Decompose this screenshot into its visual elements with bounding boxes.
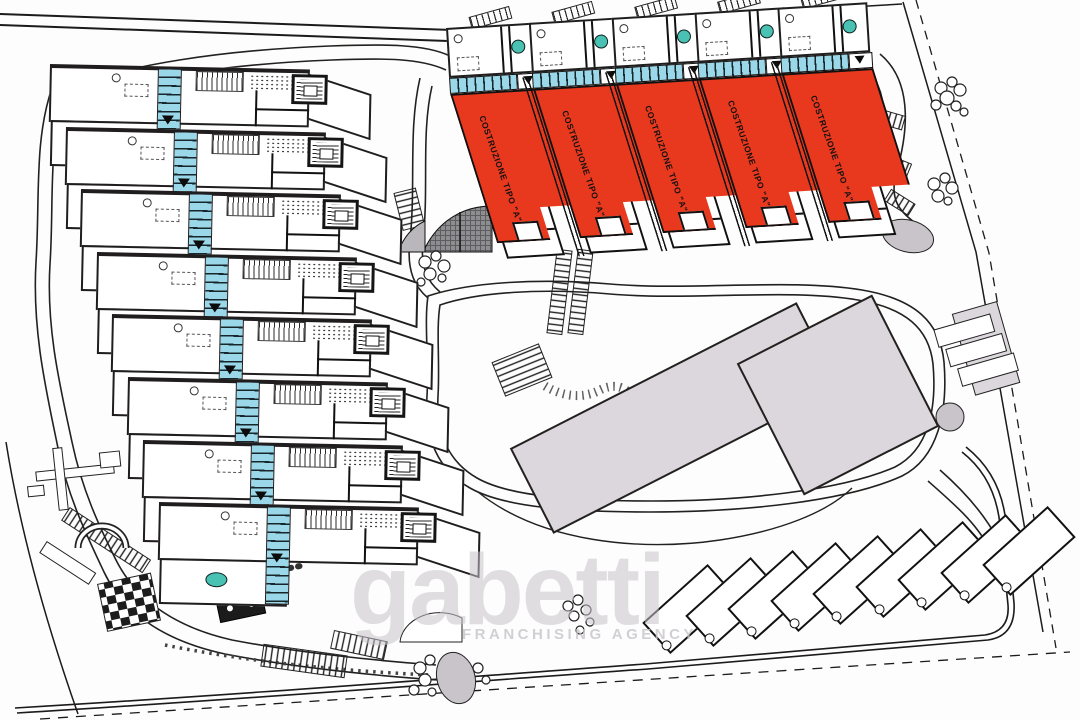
building-head <box>446 23 539 78</box>
dashed-patio <box>233 522 257 535</box>
utility-box <box>400 512 437 543</box>
type-a-buildings-row: COSTRUZIONE TIPO "A" COSTRUZIONE TIPO "A… <box>446 0 932 307</box>
small-circle <box>189 386 198 395</box>
pergola-hatch <box>288 447 336 468</box>
small-circle <box>702 19 712 29</box>
utility-box <box>291 74 328 105</box>
building-head <box>695 7 788 62</box>
dashed-patio <box>124 84 148 97</box>
dashed-patio <box>788 36 811 51</box>
dashed-patio <box>155 209 179 222</box>
dashed-patio <box>140 146 164 159</box>
corridor-wall <box>749 11 754 57</box>
tree-dot <box>511 39 526 54</box>
small-circle <box>536 29 546 39</box>
terraced-unit <box>156 502 498 619</box>
tree-dot <box>759 24 774 39</box>
utility-box <box>307 137 344 168</box>
building-head <box>612 12 705 67</box>
site-plan-canvas: COSTRUZIONE TIPO "A" COSTRUZIONE TIPO "A… <box>0 0 1080 720</box>
dashed-patio <box>217 459 241 472</box>
utility-box <box>384 450 421 481</box>
pergola-hatch <box>226 196 274 217</box>
dashed-patio <box>540 51 563 66</box>
small-circle <box>127 136 136 145</box>
corridor-wall <box>831 6 836 52</box>
utility-box <box>353 324 390 355</box>
type-a-building: COSTRUZIONE TIPO "A" <box>777 2 885 277</box>
corridor-wall <box>666 16 671 62</box>
small-circle <box>220 511 229 520</box>
pergola-hatch <box>304 509 352 530</box>
pergola-hatch <box>242 259 290 280</box>
tree-dot <box>594 34 609 49</box>
small-circle <box>619 24 629 34</box>
corridor-wall <box>500 27 505 73</box>
parking-zigzag-row <box>645 588 1080 688</box>
small-circle <box>158 261 167 270</box>
corridor-wall <box>583 22 588 68</box>
tree-dot <box>842 19 857 34</box>
tree-dot <box>677 29 692 44</box>
dashed-patio <box>705 41 728 56</box>
building-head <box>529 17 622 72</box>
pergola-hatch <box>211 134 259 155</box>
small-circle <box>453 34 463 44</box>
dashed-patio <box>171 271 195 284</box>
utility-box <box>369 387 406 418</box>
entry-arrow-icon <box>270 554 282 569</box>
dashed-patio <box>457 56 480 71</box>
building-head <box>777 2 870 57</box>
pergola-hatch <box>257 321 305 342</box>
dashed-patio <box>202 397 226 410</box>
utility-box <box>338 262 375 293</box>
pergola-hatch <box>195 71 243 92</box>
dashed-patio <box>186 334 210 347</box>
pergola-hatch <box>273 384 321 405</box>
entry-arrow-icon <box>848 52 873 69</box>
utility-box <box>322 199 359 230</box>
small-circle <box>205 449 214 458</box>
dashed-patio <box>623 46 646 61</box>
small-circle <box>785 14 795 24</box>
